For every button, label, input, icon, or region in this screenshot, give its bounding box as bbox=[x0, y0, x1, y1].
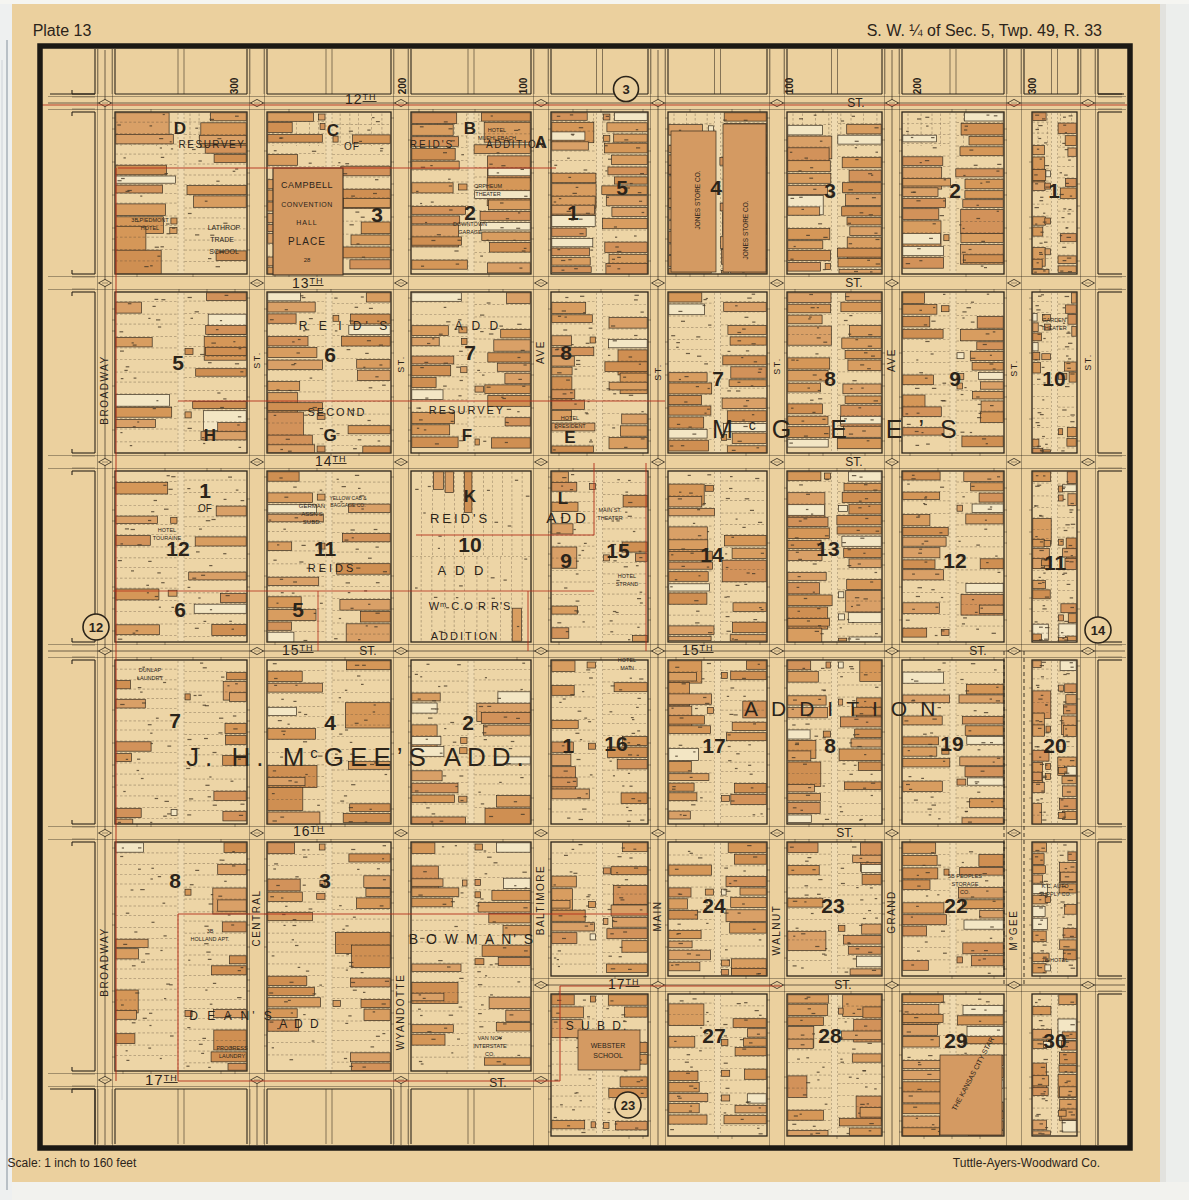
svg-text:ST.: ST. bbox=[396, 355, 406, 373]
svg-text:5: 5 bbox=[292, 598, 304, 621]
svg-text:B: B bbox=[464, 119, 476, 138]
svg-text:GARDEN: GARDEN bbox=[1042, 317, 1066, 323]
svg-text:ST.: ST. bbox=[489, 1076, 506, 1090]
svg-text:3: 3 bbox=[371, 203, 383, 226]
svg-text:14: 14 bbox=[1091, 623, 1106, 638]
svg-text:5: 5 bbox=[172, 351, 184, 374]
svg-text:7: 7 bbox=[169, 709, 181, 732]
svg-text:INTERSTATE: INTERSTATE bbox=[473, 1043, 507, 1049]
svg-text:SUBD.: SUBD. bbox=[303, 519, 322, 525]
svg-text:CO.: CO. bbox=[960, 889, 970, 895]
svg-text:CONVENTION: CONVENTION bbox=[281, 201, 333, 208]
svg-text:ST.: ST. bbox=[847, 96, 864, 110]
svg-text:HOLLAND APT.: HOLLAND APT. bbox=[191, 936, 230, 942]
svg-text:CO.: CO. bbox=[485, 1051, 495, 1057]
svg-text:1: 1 bbox=[567, 201, 579, 224]
svg-text:DOWNTOWN: DOWNTOWN bbox=[453, 221, 487, 227]
svg-text:28: 28 bbox=[304, 257, 311, 263]
svg-text:8: 8 bbox=[824, 367, 836, 390]
svg-text:AVE: AVE bbox=[535, 340, 546, 364]
svg-text:K: K bbox=[464, 487, 477, 506]
svg-text:ST.: ST. bbox=[772, 357, 782, 375]
svg-text:WEBSTER: WEBSTER bbox=[591, 1042, 626, 1049]
svg-text:2: 2 bbox=[949, 179, 961, 202]
svg-text:ADDITION: ADDITION bbox=[744, 697, 948, 720]
svg-text:BROADWAY: BROADWAY bbox=[99, 355, 110, 424]
svg-text:J. H. McGEE’S ADD.: J. H. McGEE’S ADD. bbox=[186, 742, 530, 772]
svg-text:G: G bbox=[323, 426, 336, 445]
svg-text:SCHOOL: SCHOOL bbox=[593, 1052, 623, 1059]
svg-text:9: 9 bbox=[949, 367, 961, 390]
svg-text:RESURVEY: RESURVEY bbox=[179, 139, 246, 150]
svg-text:100: 100 bbox=[518, 77, 529, 94]
svg-text:27: 27 bbox=[702, 1024, 725, 1047]
svg-text:MAIN ST.: MAIN ST. bbox=[598, 507, 622, 513]
svg-text:OF: OF bbox=[344, 141, 360, 152]
svg-text:7: 7 bbox=[712, 367, 724, 390]
svg-text:ST.: ST. bbox=[834, 978, 851, 992]
svg-text:11: 11 bbox=[1044, 551, 1067, 574]
svg-text:F: F bbox=[462, 426, 472, 445]
svg-text:CENTRAL: CENTRAL bbox=[251, 889, 262, 946]
svg-text:L: L bbox=[558, 489, 568, 508]
svg-text:VAN NOY: VAN NOY bbox=[478, 1035, 503, 1041]
svg-text:Tuttle-Ayers-Woodward Co.: Tuttle-Ayers-Woodward Co. bbox=[953, 1156, 1100, 1170]
svg-text:GARAGE: GARAGE bbox=[458, 229, 482, 235]
svg-text:8: 8 bbox=[560, 341, 572, 364]
svg-text:1: 1 bbox=[1048, 179, 1060, 202]
svg-text:ST.: ST. bbox=[1083, 353, 1093, 371]
svg-text:TRADE: TRADE bbox=[210, 236, 234, 243]
svg-text:30: 30 bbox=[1043, 1029, 1066, 1052]
svg-text:MAIN: MAIN bbox=[652, 901, 663, 932]
svg-text:JONES STORE CO.: JONES STORE CO. bbox=[694, 170, 701, 229]
svg-text:BALTIMORE: BALTIMORE bbox=[535, 865, 546, 936]
svg-text:2: 2 bbox=[462, 711, 474, 734]
svg-text:SCHOOL: SCHOOL bbox=[209, 248, 239, 255]
svg-text:200: 200 bbox=[397, 77, 408, 94]
svg-text:RESURVEY: RESURVEY bbox=[429, 404, 505, 416]
svg-text:10: 10 bbox=[458, 533, 481, 556]
svg-text:ADD: ADD bbox=[546, 509, 590, 526]
svg-text:MAIN: MAIN bbox=[620, 665, 634, 671]
svg-text:S U B D.: S U B D. bbox=[566, 1019, 629, 1033]
svg-text:6: 6 bbox=[174, 598, 186, 621]
svg-text:LATHROP: LATHROP bbox=[208, 224, 241, 231]
svg-text:HOTEL: HOTEL bbox=[141, 225, 159, 231]
svg-text:12: 12 bbox=[943, 549, 966, 572]
svg-text:ST.: ST. bbox=[836, 826, 853, 840]
svg-text:WALNUT: WALNUT bbox=[771, 905, 782, 956]
svg-text:Scale: 1 inch to 160 feet: Scale: 1 inch to 160 feet bbox=[8, 1156, 137, 1170]
svg-text:STORAGE: STORAGE bbox=[952, 881, 979, 887]
svg-text:S. W. ¼ of Sec. 5, Twp. 49, R.: S. W. ¼ of Sec. 5, Twp. 49, R. 33 bbox=[867, 22, 1102, 39]
svg-text:PRESIDENT: PRESIDENT bbox=[554, 423, 586, 429]
svg-text:7: 7 bbox=[464, 341, 476, 364]
svg-text:SECOND: SECOND bbox=[307, 406, 366, 418]
svg-text:HALL: HALL bbox=[296, 219, 318, 226]
svg-text:3: 3 bbox=[622, 82, 629, 97]
svg-text:SUPPLY CO.: SUPPLY CO. bbox=[1039, 891, 1072, 897]
svg-text:LAUNDRY: LAUNDRY bbox=[219, 1053, 246, 1059]
svg-text:4: 4 bbox=[324, 711, 336, 734]
svg-text:REIDS: REIDS bbox=[308, 562, 357, 574]
svg-text:CAMPBELL: CAMPBELL bbox=[281, 180, 333, 190]
svg-text:A D D: A D D bbox=[438, 563, 487, 578]
svg-text:HOTEL: HOTEL bbox=[158, 527, 176, 533]
svg-text:PROGRESS: PROGRESS bbox=[216, 1045, 248, 1051]
svg-text:20: 20 bbox=[1043, 734, 1066, 757]
svg-text:ST.: ST. bbox=[252, 351, 262, 369]
svg-text:R E I D' S: R E I D' S bbox=[299, 319, 391, 333]
svg-text:17: 17 bbox=[702, 734, 725, 757]
svg-text:6: 6 bbox=[324, 343, 336, 366]
svg-text:AVE: AVE bbox=[886, 348, 897, 372]
svg-text:ST.: ST. bbox=[359, 644, 376, 658]
svg-text:200: 200 bbox=[912, 77, 923, 94]
svg-text:14: 14 bbox=[700, 543, 724, 566]
svg-text:STRAND: STRAND bbox=[616, 581, 639, 587]
svg-text:300: 300 bbox=[229, 77, 240, 94]
svg-text:23: 23 bbox=[621, 1098, 635, 1113]
svg-text:REID'S: REID'S bbox=[430, 511, 490, 526]
svg-text:16: 16 bbox=[604, 732, 627, 755]
svg-text:GRAND: GRAND bbox=[886, 890, 897, 934]
svg-text:7B HOTEL: 7B HOTEL bbox=[1042, 957, 1069, 963]
svg-text:BAGGAGE CO.: BAGGAGE CO. bbox=[330, 502, 365, 508]
svg-text:WYANDOTTE: WYANDOTTE bbox=[395, 974, 406, 1051]
svg-text:THEATER: THEATER bbox=[1041, 325, 1066, 331]
svg-text:PLACE: PLACE bbox=[288, 236, 326, 247]
svg-text:4: 4 bbox=[710, 176, 722, 199]
svg-text:1: 1 bbox=[199, 479, 211, 502]
svg-text:K.C. AUTO: K.C. AUTO bbox=[1041, 883, 1069, 889]
svg-text:HOTEL: HOTEL bbox=[561, 415, 579, 421]
svg-text:OF: OF bbox=[198, 503, 212, 514]
svg-text:ORPHEUM: ORPHEUM bbox=[474, 183, 503, 189]
svg-text:HOTEL: HOTEL bbox=[618, 573, 636, 579]
svg-text:ST.: ST. bbox=[845, 455, 862, 469]
svg-text:13: 13 bbox=[816, 537, 839, 560]
svg-text:12: 12 bbox=[89, 620, 103, 635]
svg-text:ST.: ST. bbox=[969, 644, 986, 658]
svg-text:B O W M A N' S: B O W M A N' S bbox=[409, 931, 535, 947]
svg-text:ST.: ST. bbox=[845, 276, 862, 290]
svg-text:23: 23 bbox=[821, 894, 844, 917]
svg-text:15: 15 bbox=[606, 539, 630, 562]
svg-text:M°GEE: M°GEE bbox=[1008, 910, 1019, 951]
svg-text:C: C bbox=[327, 121, 339, 140]
svg-text:1: 1 bbox=[562, 734, 574, 757]
svg-text:D: D bbox=[174, 119, 186, 138]
svg-text:YELLOW CAB &: YELLOW CAB & bbox=[329, 495, 367, 501]
svg-text:3B: 3B bbox=[207, 928, 214, 934]
svg-text:A D D: A D D bbox=[455, 319, 501, 333]
svg-text:8: 8 bbox=[824, 734, 836, 757]
svg-text:THEATER: THEATER bbox=[597, 515, 622, 521]
svg-text:22: 22 bbox=[944, 894, 967, 917]
svg-text:Plate 13: Plate 13 bbox=[33, 22, 92, 39]
svg-text:MUEHLEBACH: MUEHLEBACH bbox=[478, 135, 516, 141]
svg-text:100: 100 bbox=[784, 77, 795, 94]
svg-text:E: E bbox=[564, 428, 575, 447]
svg-text:24: 24 bbox=[702, 894, 726, 917]
svg-text:ASSN'S: ASSN'S bbox=[301, 511, 323, 517]
svg-text:THEATER: THEATER bbox=[475, 191, 500, 197]
svg-text:Wᵐ C.O R R'S: Wᵐ C.O R R'S bbox=[429, 600, 512, 612]
svg-text:HOTEL: HOTEL bbox=[618, 657, 636, 663]
svg-text:10: 10 bbox=[1042, 367, 1065, 390]
svg-text:TOURAINE: TOURAINE bbox=[153, 535, 182, 541]
svg-text:11: 11 bbox=[314, 537, 337, 560]
svg-text:28: 28 bbox=[818, 1024, 842, 1047]
svg-text:8: 8 bbox=[169, 869, 181, 892]
svg-text:9: 9 bbox=[560, 549, 572, 572]
svg-text:H: H bbox=[204, 426, 216, 445]
svg-text:LAUNDRY: LAUNDRY bbox=[137, 675, 164, 681]
svg-text:300: 300 bbox=[1027, 77, 1038, 94]
svg-text:3: 3 bbox=[824, 179, 836, 202]
svg-text:BROADWAY: BROADWAY bbox=[99, 927, 110, 996]
svg-text:JONES STORE CO.: JONES STORE CO. bbox=[742, 200, 749, 259]
svg-text:5B PEOPLES: 5B PEOPLES bbox=[948, 873, 982, 879]
svg-text:3: 3 bbox=[319, 869, 331, 892]
svg-text:GERMAN: GERMAN bbox=[299, 503, 325, 509]
svg-text:ST.: ST. bbox=[1009, 359, 1019, 377]
svg-text:19: 19 bbox=[940, 732, 963, 755]
svg-text:ADDITION: ADDITION bbox=[431, 630, 500, 642]
svg-text:A D D: A D D bbox=[279, 1017, 320, 1031]
svg-text:HOTEL: HOTEL bbox=[488, 127, 506, 133]
svg-text:REID'S: REID'S bbox=[410, 139, 454, 150]
svg-text:3B PIEDMONT: 3B PIEDMONT bbox=[131, 217, 169, 223]
svg-text:DUNLAP: DUNLAP bbox=[139, 667, 162, 673]
svg-text:5: 5 bbox=[616, 176, 628, 199]
svg-text:29: 29 bbox=[944, 1029, 967, 1052]
svg-text:ST.: ST. bbox=[653, 363, 663, 381]
svg-text:D E A N' S: D E A N' S bbox=[189, 1009, 275, 1023]
